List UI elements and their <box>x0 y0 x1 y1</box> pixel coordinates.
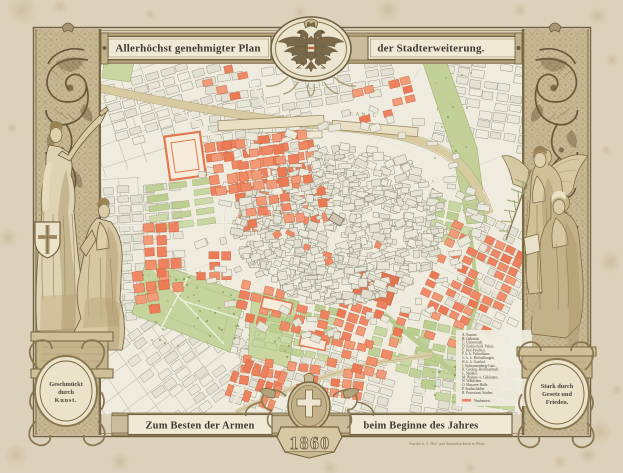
svg-text:der Stadterweiterung.: der Stadterweiterung. <box>377 43 484 55</box>
svg-text:beim Beginne des Jahres: beim Beginne des Jahres <box>364 421 479 432</box>
svg-text:Zum Besten der Armen: Zum Besten der Armen <box>145 421 254 432</box>
svg-text:Neubauten.: Neubauten. <box>474 399 491 403</box>
svg-text:durch: durch <box>58 389 74 396</box>
svg-text:Gesetz und: Gesetz und <box>542 391 572 398</box>
svg-text:Stark durch: Stark durch <box>541 383 574 390</box>
svg-text:R. Protestant. Säulen.: R. Protestant. Säulen. <box>462 391 493 395</box>
svg-text:Aus der k. k. Hof- und Staatsd: Aus der k. k. Hof- und Staatsdruckerei i… <box>409 441 485 446</box>
svg-text:Kunst.: Kunst. <box>55 397 78 404</box>
svg-text:Allerhöchst genehmigter Plan: Allerhöchst genehmigter Plan <box>115 43 260 55</box>
svg-text:1860: 1860 <box>290 433 331 453</box>
svg-text:Geschmückt: Geschmückt <box>49 381 83 388</box>
svg-text:Frieden.: Frieden. <box>546 399 569 406</box>
